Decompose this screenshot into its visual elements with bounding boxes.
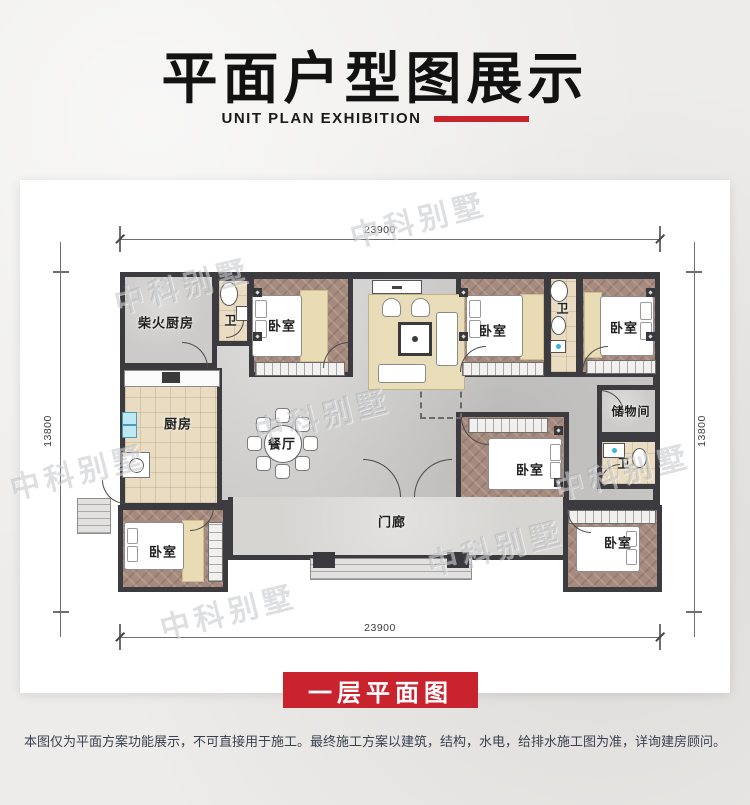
floor-label-banner: 一层平面图 bbox=[283, 672, 478, 708]
porch-pillar bbox=[313, 552, 335, 568]
subtitle-row: UNIT PLAN EXHIBITION bbox=[0, 110, 750, 127]
page-title: 平面户型图展示 bbox=[0, 34, 750, 115]
page-subtitle: UNIT PLAN EXHIBITION bbox=[221, 110, 421, 127]
dining-chair bbox=[295, 417, 310, 432]
sink bbox=[220, 282, 238, 306]
pillow bbox=[255, 300, 267, 318]
dim-label-bottom: 23900 bbox=[340, 622, 420, 634]
dim-line-top bbox=[120, 239, 660, 240]
coffee-table bbox=[398, 322, 432, 356]
label-firewood-kitchen: 柴火厨房 bbox=[138, 313, 194, 332]
wall-unit bbox=[554, 478, 563, 487]
washing-machine bbox=[122, 452, 150, 478]
dim-line-right bbox=[694, 242, 695, 637]
wall-unit bbox=[459, 332, 468, 341]
pillow bbox=[550, 444, 561, 461]
label-bath-top-left: 卫 bbox=[224, 312, 237, 329]
dim-tick bbox=[686, 611, 702, 613]
pillow bbox=[640, 302, 652, 320]
room-kitchen bbox=[120, 368, 222, 508]
pillow bbox=[550, 462, 561, 479]
accent-bar bbox=[434, 116, 529, 122]
kitchen-appliance bbox=[122, 425, 137, 438]
label-storage: 储物间 bbox=[611, 403, 650, 420]
label-porch: 门廊 bbox=[378, 512, 406, 531]
wall-unit bbox=[253, 288, 262, 297]
wall-unit bbox=[646, 288, 655, 297]
wall-unit bbox=[459, 288, 468, 297]
pillow bbox=[469, 300, 481, 318]
label-bedroom-top-mid: 卧室 bbox=[479, 321, 507, 340]
armchair bbox=[411, 298, 430, 317]
wall-unit bbox=[646, 332, 655, 341]
porch-pillar bbox=[447, 552, 469, 568]
label-bath-mid-right: 卫 bbox=[617, 455, 630, 472]
dim-line-left bbox=[60, 242, 61, 637]
label-bedroom-top-right: 卧室 bbox=[610, 318, 638, 337]
wall-unit bbox=[554, 426, 563, 435]
wardrobe bbox=[208, 522, 223, 582]
tv-cabinet bbox=[372, 280, 422, 294]
dining-chair bbox=[256, 456, 271, 471]
label-bedroom-bottom-right: 卧室 bbox=[604, 533, 632, 552]
label-bedroom-mid-right: 卧室 bbox=[516, 460, 544, 479]
dim-label-left: 13800 bbox=[42, 401, 54, 461]
dining-chair bbox=[275, 464, 290, 479]
side-steps bbox=[77, 498, 111, 534]
armchair bbox=[382, 298, 401, 317]
toilet bbox=[551, 316, 566, 335]
floorplan-card: 23900 23900 13800 13800 bbox=[20, 180, 730, 693]
dim-label-top: 23900 bbox=[340, 224, 420, 236]
label-bedroom-top-left: 卧室 bbox=[268, 316, 296, 335]
kitchen-appliance bbox=[122, 412, 137, 425]
toilet bbox=[236, 306, 248, 321]
dim-tick bbox=[53, 271, 69, 273]
wall-unit bbox=[253, 332, 262, 341]
bedside-mat bbox=[520, 294, 544, 360]
dim-label-right: 13800 bbox=[696, 401, 708, 461]
sofa-side bbox=[436, 312, 458, 366]
dining-chair bbox=[303, 436, 318, 451]
pillow bbox=[127, 546, 138, 562]
bedside-mat bbox=[300, 290, 328, 362]
dim-tick bbox=[686, 271, 702, 273]
stove bbox=[162, 372, 180, 383]
dining-chair bbox=[275, 408, 290, 423]
label-dining: 餐厅 bbox=[268, 434, 296, 453]
disclaimer-text: 本图仅为平面方案功能展示，不可直接用于施工。最终施工方案以建筑，结构，水电，给排… bbox=[0, 731, 750, 750]
dim-line-bottom bbox=[120, 637, 660, 638]
label-bath-top-mid: 卫 bbox=[556, 300, 569, 317]
poster-page: 平面户型图展示 UNIT PLAN EXHIBITION 23900 23900… bbox=[0, 0, 750, 805]
label-bedroom-bottom-left: 卧室 bbox=[149, 542, 177, 561]
pillow bbox=[127, 528, 138, 544]
label-kitchen: 厨房 bbox=[164, 414, 192, 433]
dim-tick bbox=[53, 611, 69, 613]
dining-chair bbox=[295, 456, 310, 471]
dining-chair bbox=[247, 436, 262, 451]
sofa-bottom bbox=[378, 364, 426, 383]
toilet bbox=[632, 448, 647, 468]
basin bbox=[550, 340, 566, 353]
